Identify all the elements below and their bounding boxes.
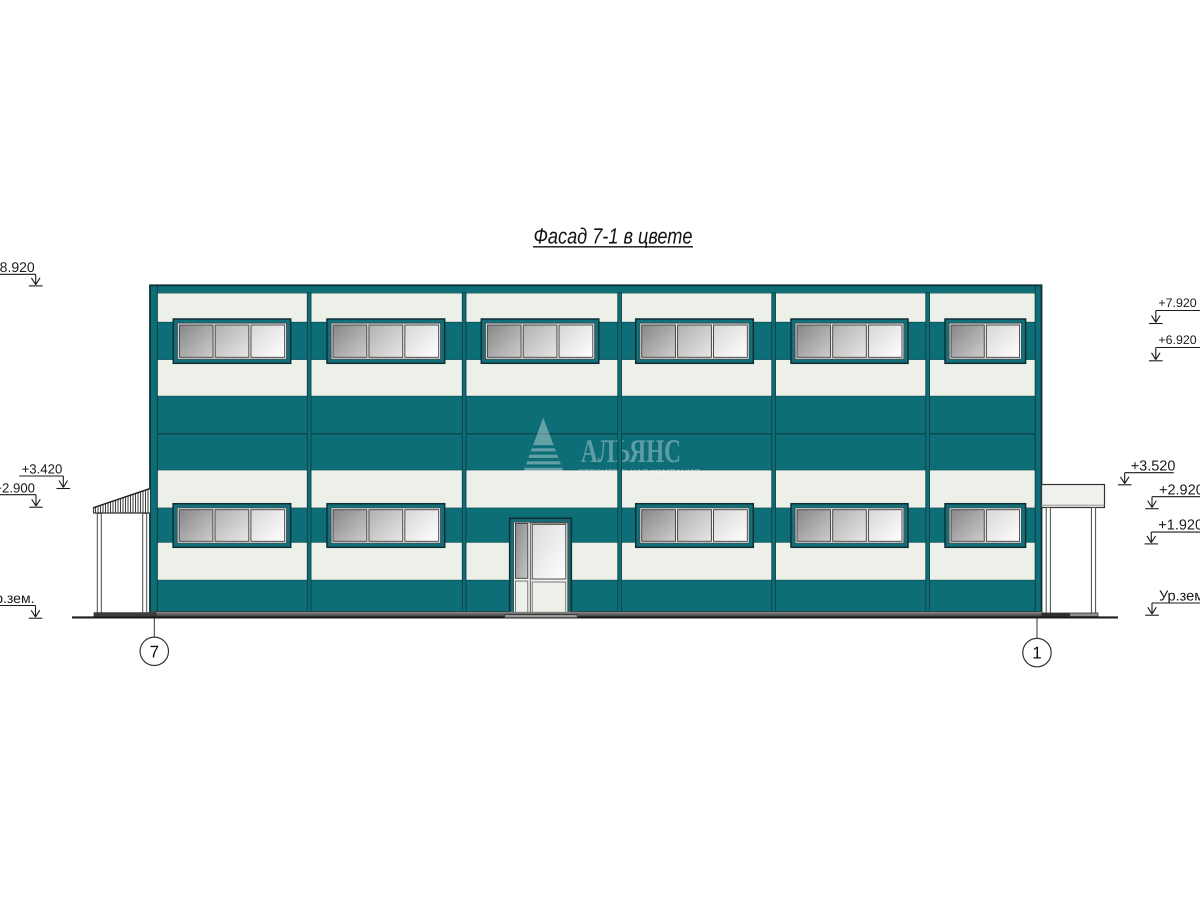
svg-text:+2.920: +2.920 <box>1159 482 1200 498</box>
svg-text:+3.520: +3.520 <box>1131 458 1176 474</box>
svg-text:СТРОИТЕЛЬНАЯ КОМПАНИЯ: СТРОИТЕЛЬНАЯ КОМПАНИЯ <box>578 467 700 476</box>
svg-text:АЛЬЯНС: АЛЬЯНС <box>581 434 681 470</box>
svg-text:7: 7 <box>150 642 159 661</box>
svg-text:Ур.зем.: Ур.зем. <box>0 590 35 606</box>
svg-text:+2.900: +2.900 <box>0 480 35 495</box>
svg-text:Фасад 7-1 в цвете: Фасад 7-1 в цвете <box>534 224 693 249</box>
svg-text:+8.920: +8.920 <box>0 259 35 275</box>
svg-text:+7.920: +7.920 <box>1158 296 1196 310</box>
svg-text:+6.920: +6.920 <box>1158 333 1196 347</box>
svg-text:Ур.зем: Ур.зем <box>1159 589 1200 605</box>
svg-text:+3.420: +3.420 <box>22 462 63 477</box>
svg-text:1: 1 <box>1032 644 1041 663</box>
svg-text:+1.920: +1.920 <box>1158 518 1200 534</box>
